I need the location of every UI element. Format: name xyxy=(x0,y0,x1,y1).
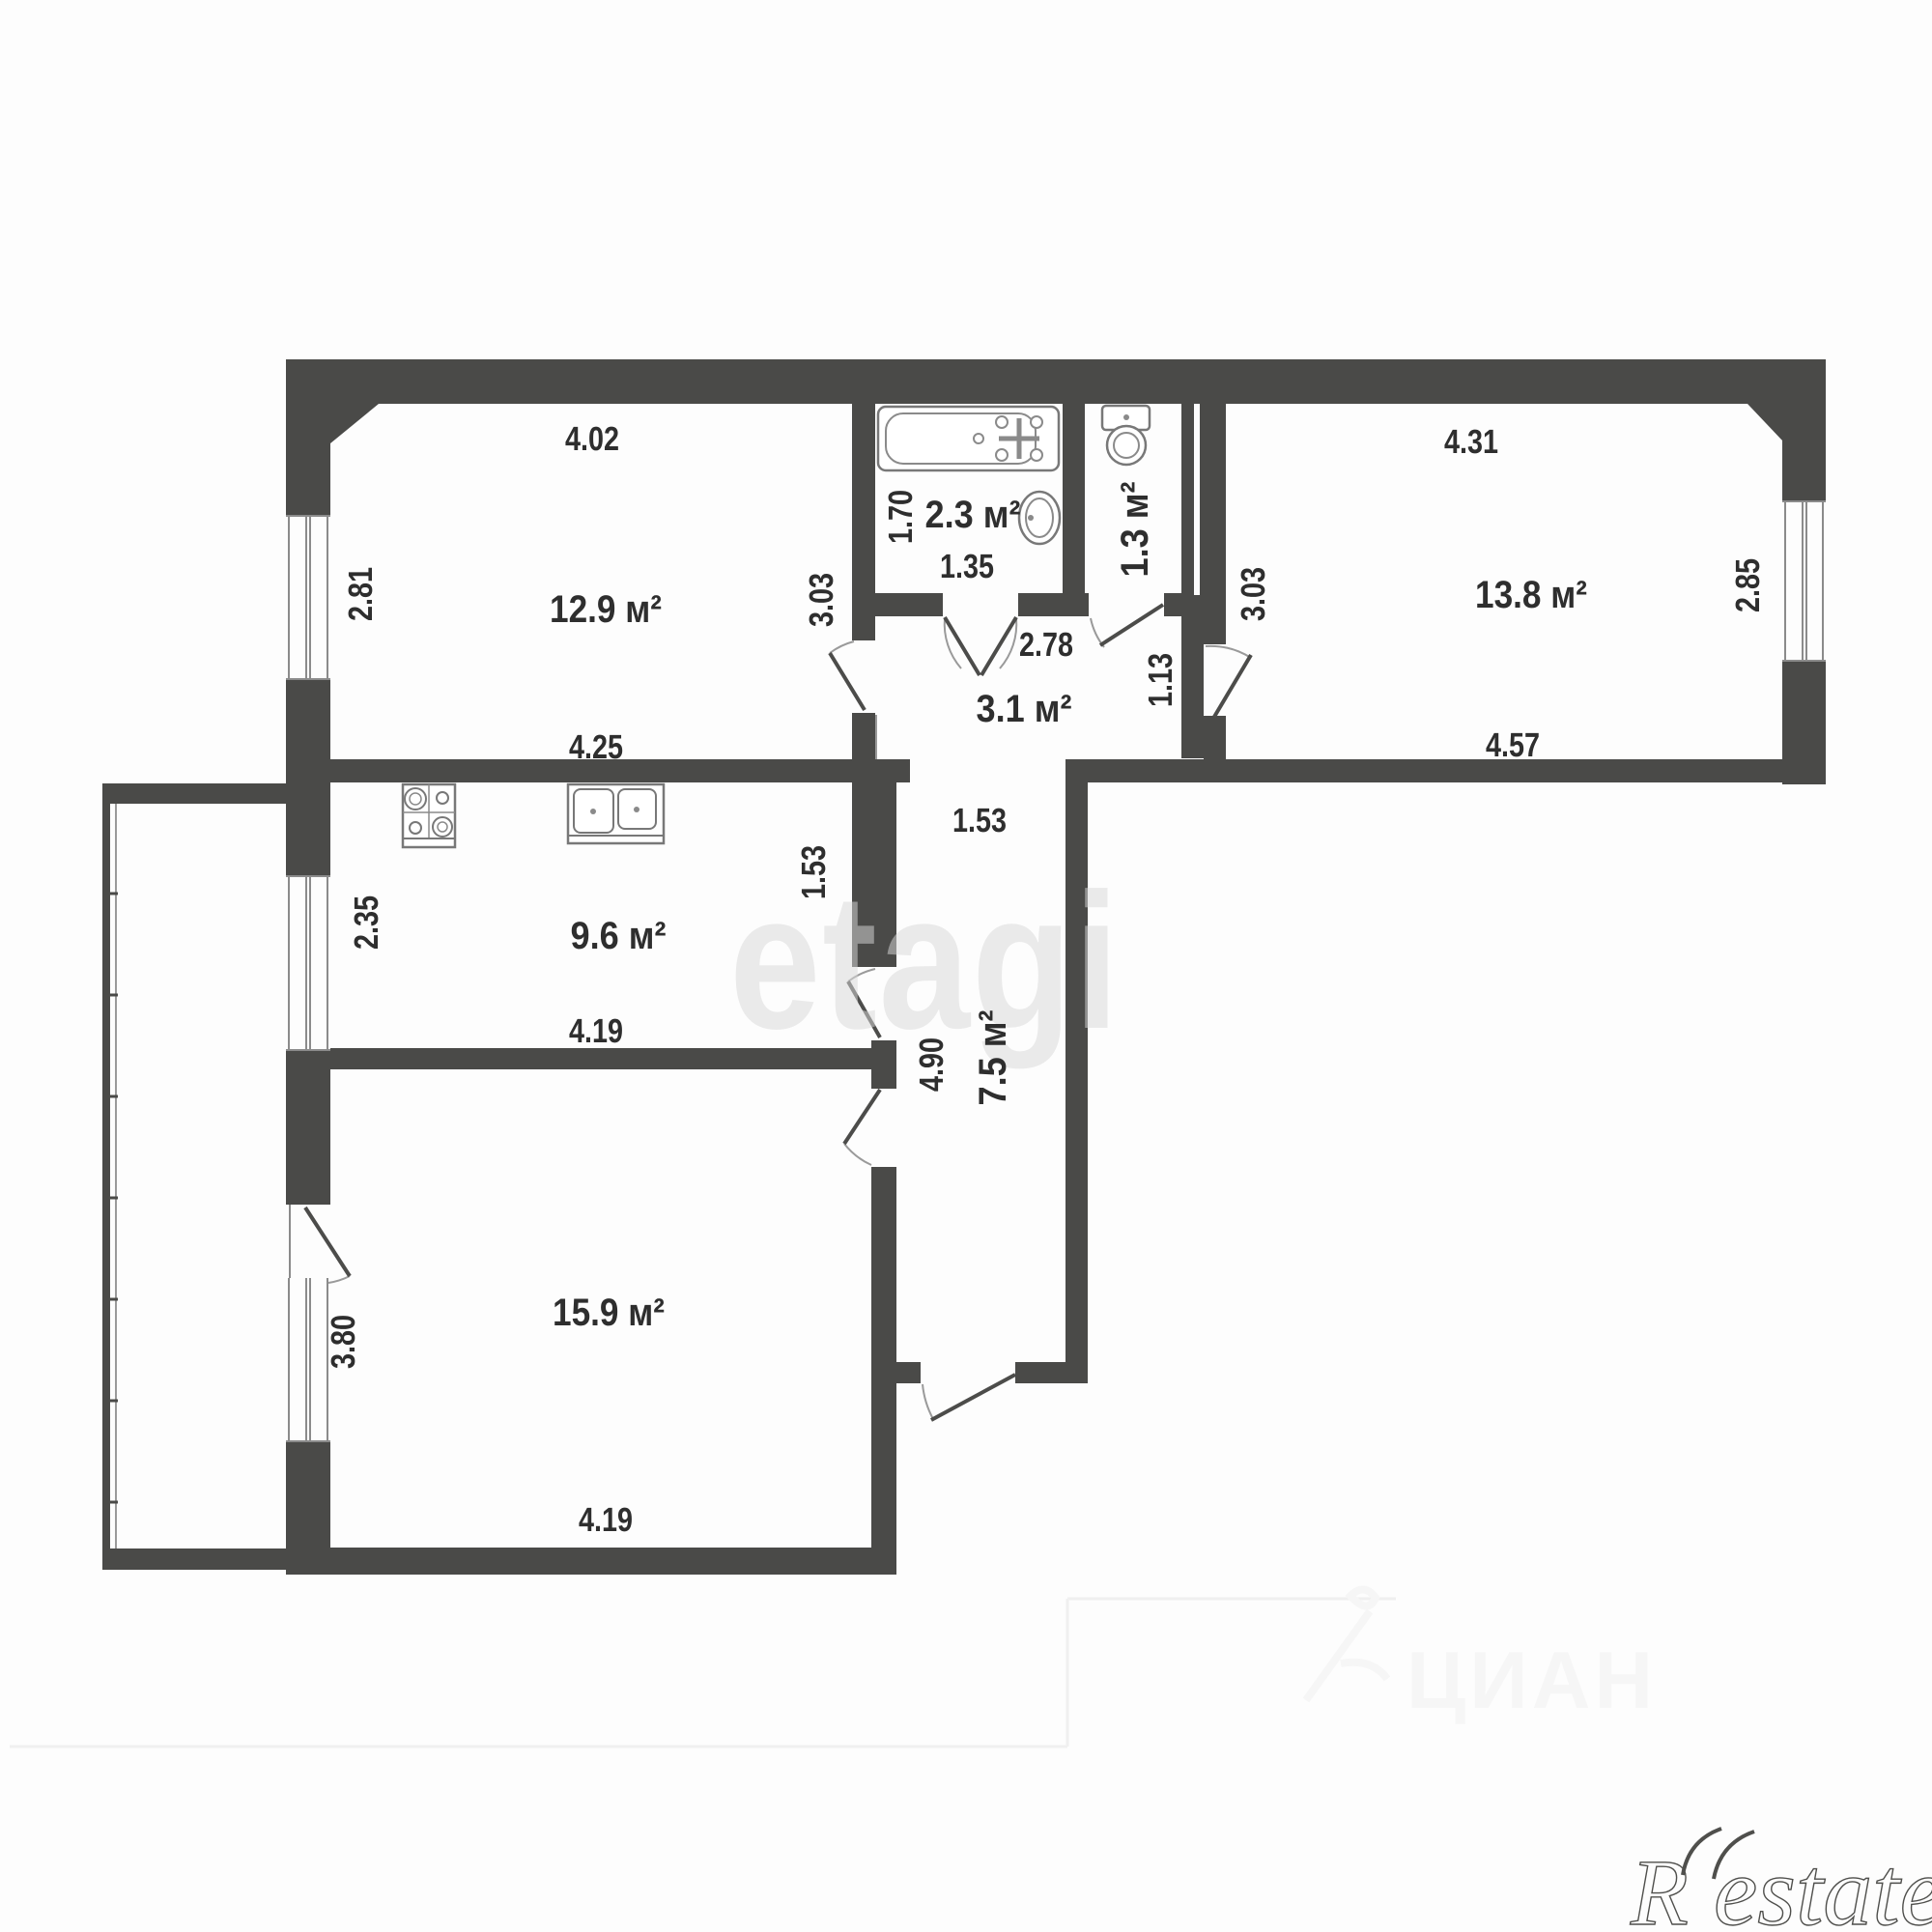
svg-text:4.19: 4.19 xyxy=(579,1501,633,1539)
svg-text:12.9 м²: 12.9 м² xyxy=(550,588,662,631)
svg-text:3.80: 3.80 xyxy=(325,1315,362,1369)
svg-text:1.70: 1.70 xyxy=(882,490,920,544)
svg-text:1.35: 1.35 xyxy=(940,548,994,585)
svg-text:1.3 м²: 1.3 м² xyxy=(1114,482,1156,578)
svg-text:4.31: 4.31 xyxy=(1444,423,1498,461)
svg-text:3.03: 3.03 xyxy=(803,573,840,627)
svg-text:3.1 м²: 3.1 м² xyxy=(977,688,1072,730)
svg-text:4.25: 4.25 xyxy=(569,728,623,766)
svg-text:13.8 м²: 13.8 м² xyxy=(1475,574,1587,616)
svg-text:9.6 м²: 9.6 м² xyxy=(571,915,667,957)
svg-text:2.81: 2.81 xyxy=(342,567,380,621)
svg-text:4.57: 4.57 xyxy=(1486,726,1540,764)
svg-text:1.53: 1.53 xyxy=(795,845,833,899)
svg-text:2.78: 2.78 xyxy=(1019,626,1073,664)
svg-text:R: R xyxy=(1630,1841,1689,1932)
svg-text:4.02: 4.02 xyxy=(565,420,619,458)
svg-text:2.3 м²: 2.3 м² xyxy=(925,494,1021,536)
svg-text:2.35: 2.35 xyxy=(348,895,385,950)
svg-text:15.9 м²: 15.9 м² xyxy=(553,1292,665,1334)
svg-text:4.19: 4.19 xyxy=(569,1012,623,1050)
svg-text:2.85: 2.85 xyxy=(1729,558,1767,612)
svg-text:7.5 м²: 7.5 м² xyxy=(972,1010,1014,1106)
svg-text:ЦИАН: ЦИАН xyxy=(1406,1634,1657,1725)
svg-text:3.03: 3.03 xyxy=(1235,567,1272,621)
svg-text:1.53: 1.53 xyxy=(952,802,1007,839)
svg-text:estate: estate xyxy=(1714,1837,1932,1932)
svg-text:4.90: 4.90 xyxy=(913,1037,951,1092)
svg-text:etagi: etagi xyxy=(729,854,1121,1069)
svg-text:1.13: 1.13 xyxy=(1142,653,1179,707)
